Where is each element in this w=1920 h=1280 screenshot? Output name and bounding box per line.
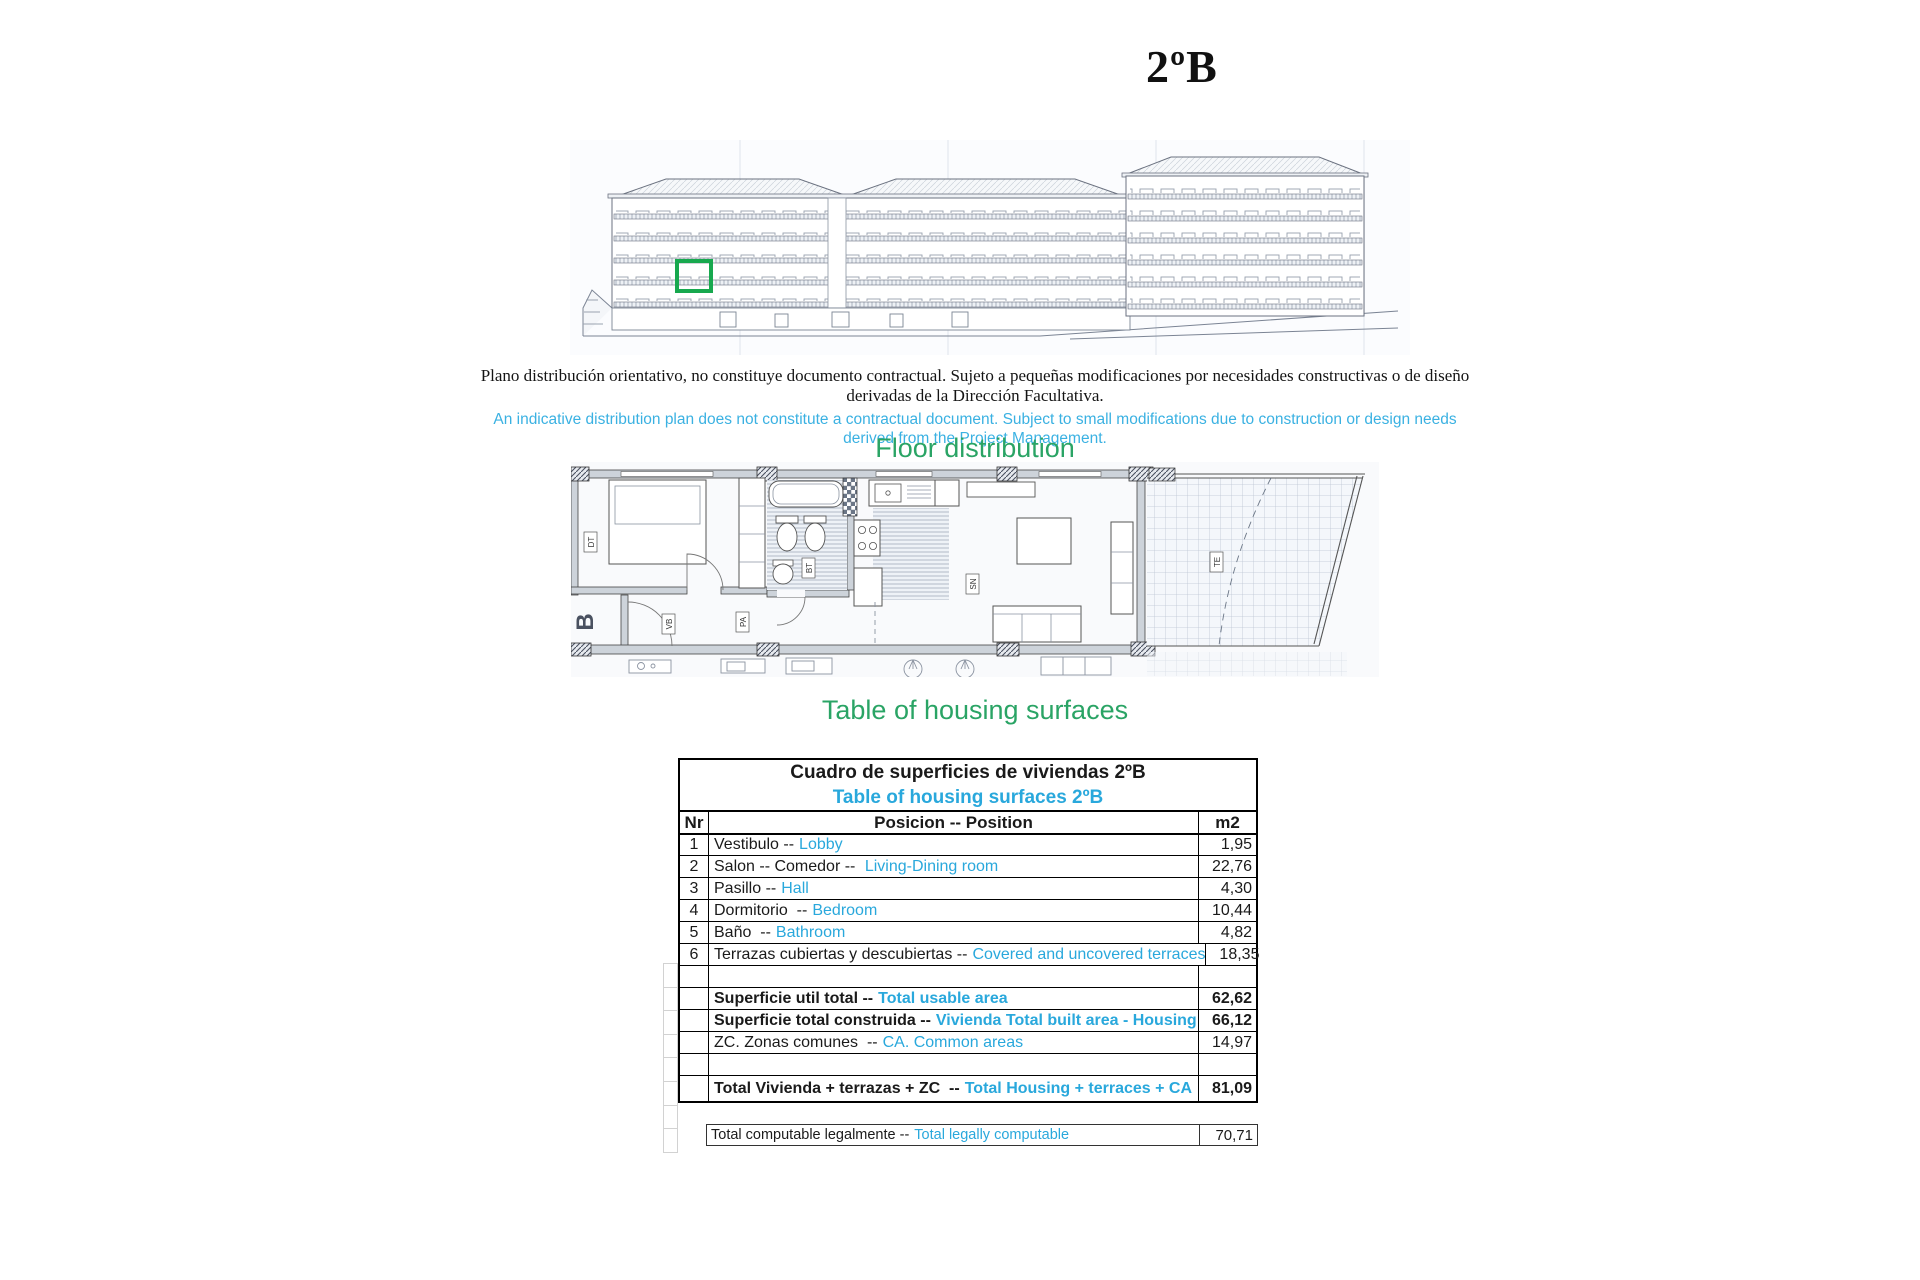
disclaimer-en-line1: An indicative distribution plan does not…: [420, 410, 1530, 429]
summary-row-common: ZC. Zonas comunes --CA. Common areas 14,…: [680, 1031, 1256, 1053]
header-position: Posicion -- Position: [708, 812, 1198, 833]
row-desc-en: Covered and uncovered terraces: [972, 946, 1205, 964]
unit-title: 2ºB: [1146, 40, 1218, 93]
sideboard: [967, 482, 1035, 497]
bath-tag: BT: [802, 558, 815, 578]
elevation-svg: [570, 140, 1410, 355]
floorplan-svg: DT: [571, 462, 1379, 677]
total-row: Total Vivienda + terrazas + ZC --Total H…: [680, 1075, 1256, 1101]
row-nr: 4: [680, 900, 708, 921]
row-m2: 4,30: [1198, 878, 1256, 899]
table-row: 2 Salon -- Comedor -- Living-Dining room…: [680, 855, 1256, 877]
row-desc: Salon -- Comedor -- Living-Dining room: [708, 856, 1198, 877]
row-desc-es: Vestibulo --: [714, 836, 794, 854]
table-row: 6 Terrazas cubiertas y descubiertas --Co…: [680, 943, 1256, 965]
row-desc-en: Vivienda Total built area - Housing: [936, 1012, 1197, 1030]
row-desc-es: Pasillo --: [714, 880, 776, 898]
sofa-right: [1111, 522, 1133, 614]
row-desc-en: Total usable area: [878, 990, 1008, 1008]
disclaimer-es-line1: Plano distribución orientativo, no const…: [420, 366, 1530, 386]
svg-text:BT: BT: [805, 563, 814, 573]
row-m2: 22,76: [1198, 856, 1256, 877]
plan-sheet: 2ºB: [0, 0, 1920, 1280]
blank-row: [680, 1053, 1256, 1075]
row-m2: 14,97: [1198, 1032, 1256, 1053]
svg-text:TE: TE: [1213, 557, 1222, 567]
row-desc-es: Salon -- Comedor --: [714, 858, 860, 876]
main-building-block: [608, 179, 1134, 330]
floor-plan-drawing: DT: [571, 462, 1379, 677]
row-m2: 70,71: [1199, 1125, 1257, 1145]
row-desc-en: Total legally computable: [914, 1127, 1069, 1143]
row-desc: Dormitorio --Bedroom: [708, 900, 1198, 921]
row-desc: Pasillo --Hall: [708, 878, 1198, 899]
row-desc-es: Total Vivienda + terrazas + ZC --: [714, 1080, 960, 1098]
bedroom-tag: DT: [584, 532, 597, 552]
table-row: 4 Dormitorio --Bedroom 10,44: [680, 899, 1256, 921]
row-desc-en: Living-Dining room: [865, 858, 998, 876]
row-desc: Superficie total construida --Vivienda T…: [708, 1010, 1198, 1031]
row-desc-en: Bathroom: [776, 924, 845, 942]
living-tag: SN: [966, 574, 979, 594]
row-desc: Baño --Bathroom: [708, 922, 1198, 943]
row-m2: 62,62: [1198, 988, 1256, 1009]
svg-text:VB: VB: [665, 619, 674, 630]
row-desc-es: Baño --: [714, 924, 771, 942]
housing-surfaces-heading: Table of housing surfaces: [420, 695, 1530, 726]
svg-text:SN: SN: [969, 578, 978, 589]
row-desc-es: Terrazas cubiertas y descubiertas --: [714, 946, 967, 964]
row-m2: 4,82: [1198, 922, 1256, 943]
table-row: 5 Baño --Bathroom 4,82: [680, 921, 1256, 943]
row-desc-en: Hall: [781, 880, 809, 898]
sofa-bottom: [993, 606, 1081, 642]
header-nr: Nr: [680, 812, 708, 833]
row-m2: 1,95: [1198, 835, 1256, 855]
right-building-block: [1122, 157, 1368, 316]
header-unit: m2: [1198, 812, 1256, 833]
blank-row: [680, 965, 1256, 987]
svg-text:PA: PA: [739, 616, 748, 627]
washbasin: [773, 560, 793, 584]
basement-openings: [612, 308, 1130, 330]
row-desc-es: ZC. Zonas comunes --: [714, 1034, 878, 1052]
summary-row-built: Superficie total construida --Vivienda T…: [680, 1009, 1256, 1031]
row-desc-en: Bedroom: [812, 902, 877, 920]
row-desc-en: Lobby: [799, 836, 843, 854]
legal-total-row: Total computable legalmente --Total lega…: [706, 1124, 1258, 1146]
row-desc: ZC. Zonas comunes --CA. Common areas: [708, 1032, 1198, 1053]
table-header-row: Nr Posicion -- Position m2: [680, 810, 1256, 833]
dining-table: [1017, 518, 1071, 564]
stair-shaft: [828, 198, 846, 308]
table-row: 3 Pasillo --Hall 4,30: [680, 877, 1256, 899]
row-desc: Vestibulo --Lobby: [708, 835, 1198, 855]
toilet: [776, 516, 798, 551]
wardrobe: [739, 478, 765, 588]
block-letter: B: [572, 613, 599, 630]
floor-distribution-heading: Floor distribution: [420, 433, 1530, 464]
row-desc: Total computable legalmente --Total lega…: [707, 1125, 1199, 1145]
kitchen: [854, 480, 959, 606]
bathtub: [769, 481, 843, 507]
surfaces-main-table: Cuadro de superficies de viviendas 2ºB T…: [678, 758, 1258, 1103]
row-nr: 2: [680, 856, 708, 877]
row-desc-en: CA. Common areas: [883, 1034, 1024, 1052]
table-title-en: Table of housing surfaces 2ºB: [680, 785, 1256, 810]
terrace-tag: TE: [1210, 552, 1223, 572]
row-desc-es: Superficie util total --: [714, 990, 873, 1008]
svg-text:DT: DT: [587, 537, 596, 548]
row-desc-es: Superficie total construida --: [714, 1012, 931, 1030]
stove: [854, 520, 880, 556]
row-nr: 1: [680, 835, 708, 855]
row-nr: 5: [680, 922, 708, 943]
table-row: 1 Vestibulo --Lobby 1,95: [680, 833, 1256, 855]
row-m2: 18,35: [1205, 944, 1263, 965]
kitchen-cabinet: [854, 568, 882, 606]
row-desc: Terrazas cubiertas y descubiertas --Cove…: [708, 944, 1205, 965]
spreadsheet-gutter: [663, 963, 678, 1153]
row-m2: 66,12: [1198, 1010, 1256, 1031]
corridor-tag: PA: [736, 612, 749, 632]
row-desc-es: Total computable legalmente --: [711, 1127, 909, 1143]
row-desc-en: Total Housing + terraces + CA: [965, 1080, 1192, 1098]
bathroom-door-opening: [777, 590, 805, 597]
row-nr: 3: [680, 878, 708, 899]
disclaimer-es-line2: derivadas de la Dirección Facultativa.: [420, 386, 1530, 406]
summary-row-usable: Superficie util total --Total usable are…: [680, 987, 1256, 1009]
row-m2: 81,09: [1198, 1076, 1256, 1101]
hall-tag: VB: [662, 614, 675, 634]
table-title-es: Cuadro de superficies de viviendas 2ºB: [680, 760, 1256, 785]
bidet: [804, 516, 826, 551]
row-nr: 6: [680, 944, 708, 965]
row-desc: Superficie util total --Total usable are…: [708, 988, 1198, 1009]
building-elevation-drawing: [570, 140, 1410, 355]
row-desc: Total Vivienda + terrazas + ZC --Total H…: [708, 1076, 1198, 1101]
row-desc-es: Dormitorio --: [714, 902, 807, 920]
row-m2: 10,44: [1198, 900, 1256, 921]
